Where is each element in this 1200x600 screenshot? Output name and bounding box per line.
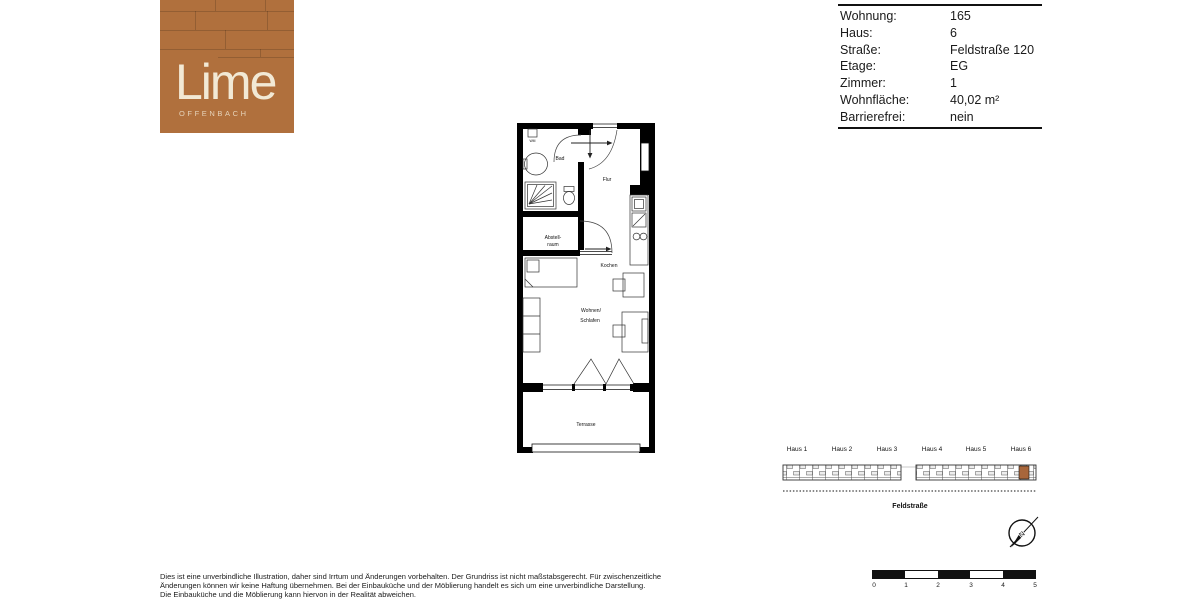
row-value: EG [950,58,1042,75]
scale-tick: 0 [872,582,876,589]
scale-bar: 0 1 2 3 4 5 [872,570,1036,594]
room-label-bad: Bad [556,156,565,162]
disclaimer-line: Die Einbauküche und die Möblierung kann … [160,590,860,599]
disclaimer-text: Dies ist eine unverbindliche Illustratio… [160,572,860,600]
house-label: Haus 3 [877,446,898,453]
washing-machine [528,129,537,137]
table-row: Etage:EG [840,58,1042,75]
scale-tick: 5 [1033,582,1037,589]
building-band-west [783,465,901,480]
walls [517,123,655,453]
room-label-wohnen: Wohnen/ [581,308,602,314]
brand-logo: Lime OFFENBACH [160,0,294,133]
room-label-kochen: Kochen [601,263,618,269]
table-and-chair [613,273,644,297]
house-label: Haus 6 [1011,446,1032,453]
row-label: Barrierefrei: [840,109,950,126]
site-plan: Haus 1 Haus 2 Haus 3 Haus 4 Haus 5 Haus … [780,440,1040,515]
scale-segment [970,571,1002,578]
window [641,143,649,171]
brick-line [195,11,196,30]
disclaimer-line: Änderungen können wir keine Haftung über… [160,581,860,590]
bed [525,258,577,287]
brick-line [215,0,216,11]
french-doors [574,359,634,384]
street-label: Feldstraße [892,503,928,510]
room-label-abstellraum: Abstell- [545,235,562,241]
house-label: Haus 4 [922,446,943,453]
house-label: Haus 2 [832,446,853,453]
scale-tick: 4 [1001,582,1005,589]
scale-segment [1003,571,1035,578]
brand-city: OFFENBACH [179,109,249,118]
table-row: Wohnung:165 [840,8,1042,25]
room-label-flur: Flur [603,177,612,183]
brick-line [160,30,294,31]
brick-line [225,30,226,49]
toilet [564,187,575,205]
highlighted-unit [1019,466,1029,479]
terrace-edge [532,444,640,452]
entry-arrows [571,130,613,251]
row-label: Straße: [840,42,950,59]
brick-line [160,11,294,12]
row-value: 6 [950,25,1042,42]
apartment-info-table: Wohnung:165 Haus:6 Straße:Feldstraße 120… [838,4,1042,129]
room-label-terrasse: Terrasse [576,422,595,428]
wardrobe [523,298,540,352]
house-label: Haus 1 [787,446,808,453]
row-label: Wohnfläche: [840,92,950,109]
door-arcs [554,130,617,253]
room-label-abstellraum: raum [547,242,558,248]
desk-and-chair [613,312,648,352]
scale-segment [905,571,937,578]
table-row: Wohnfläche:40,02 m² [840,92,1042,109]
scale-segment [938,571,970,578]
row-label: Etage: [840,58,950,75]
scale-tick: 1 [904,582,908,589]
scale-tick: 2 [936,582,940,589]
disclaimer-line: Dies ist eine unverbindliche Illustratio… [160,572,860,581]
table-row: Straße:Feldstraße 120 [840,42,1042,59]
row-value: Feldstraße 120 [950,42,1042,59]
row-label: Zimmer: [840,75,950,92]
table-row: Haus:6 [840,25,1042,42]
scale-segment [873,571,905,578]
table-row: Zimmer:1 [840,75,1042,92]
house-labels: Haus 1 Haus 2 Haus 3 Haus 4 Haus 5 Haus … [787,446,1032,453]
floorplan-datasheet: { "logo": { "brand": "Lime", "city": "OF… [0,0,1200,600]
thresholds [543,124,633,390]
brand-name: Lime [175,57,275,107]
brick-line [265,0,266,11]
row-value: nein [950,109,1042,126]
sink [525,153,548,175]
row-value: 1 [950,75,1042,92]
scale-tick: 3 [969,582,973,589]
brick-line [160,49,294,50]
scale-bar-segments [872,570,1036,579]
row-label: Wohnung: [840,8,950,25]
row-value: 165 [950,8,1042,25]
shower [525,182,556,209]
row-value: 40,02 m² [950,92,1042,109]
room-label-wohnen: Schlafen [580,318,600,324]
north-compass: N [1004,514,1042,552]
house-label: Haus 5 [966,446,987,453]
brick-line [267,11,268,30]
floor-plan-drawing: WM Bad Flur Abstell- raum Kochen Wohnen/… [517,123,655,453]
table-row: Barrierefrei:nein [840,109,1042,126]
row-label: Haus: [840,25,950,42]
room-label-wm: WM [529,139,535,143]
building-band-east [916,465,1036,480]
furniture [523,129,648,384]
kitchen-counter [630,195,648,265]
